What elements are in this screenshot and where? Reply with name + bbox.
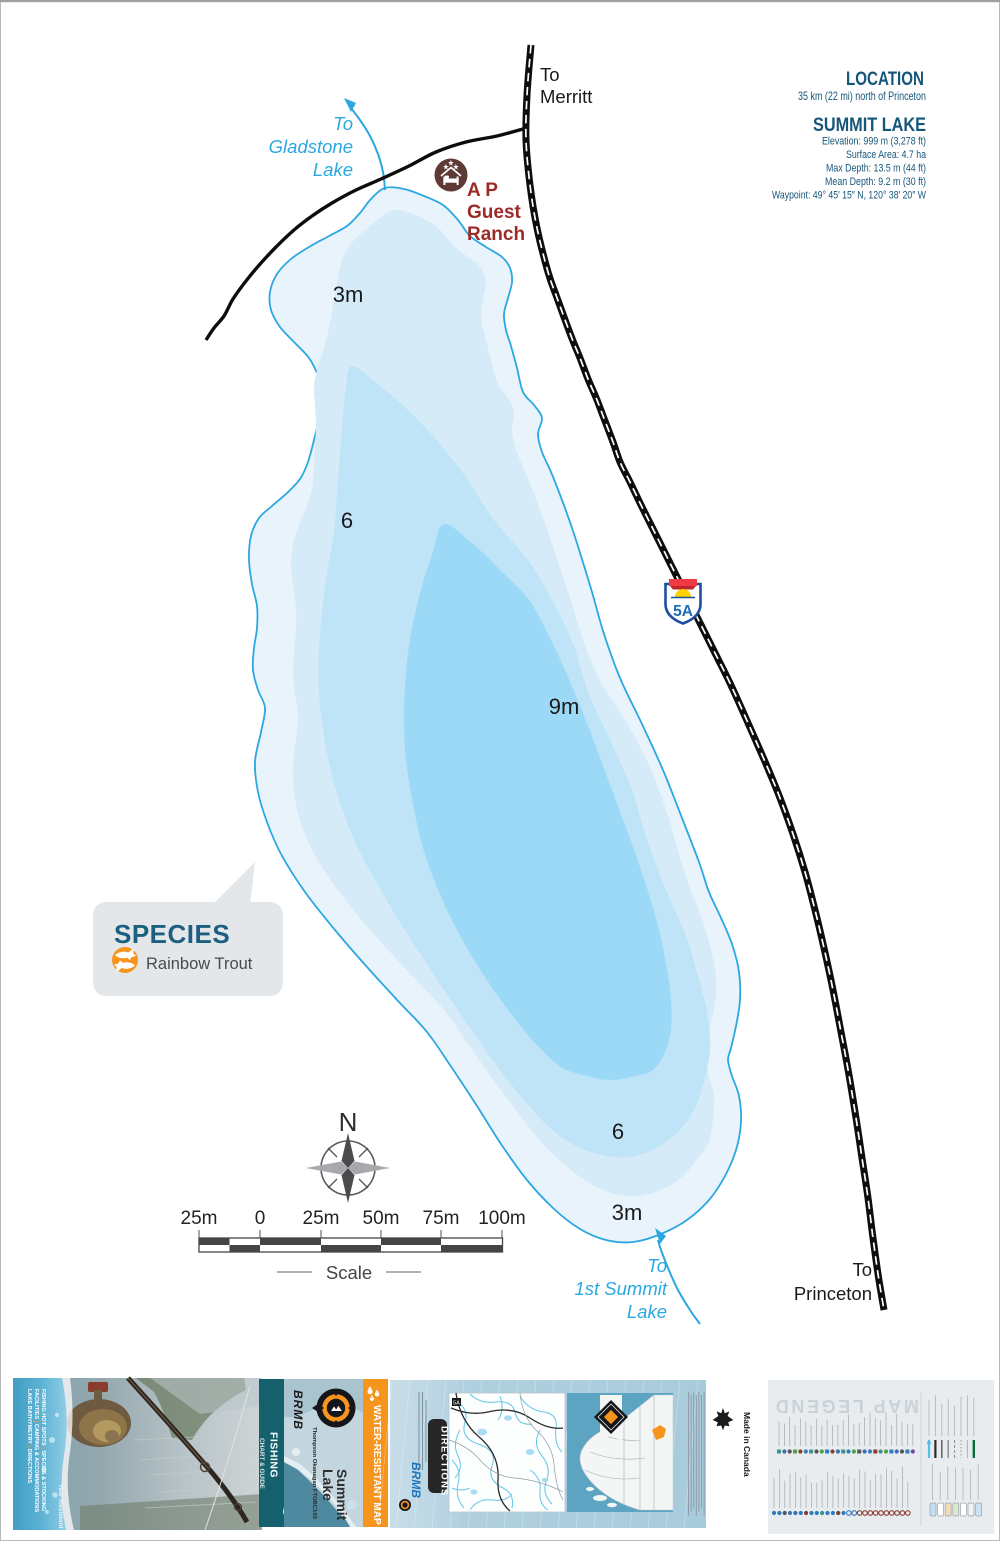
svg-text:50m: 50m bbox=[363, 1208, 400, 1229]
svg-text:Scale: Scale bbox=[326, 1262, 372, 1283]
svg-text:FISHING: FISHING bbox=[268, 1432, 280, 1478]
svg-text:SUMMIT LAKE: SUMMIT LAKE bbox=[813, 115, 926, 136]
svg-text:Lake: Lake bbox=[313, 159, 353, 180]
svg-text:Tear-Resistant: Tear-Resistant bbox=[57, 1484, 64, 1530]
svg-text:3m: 3m bbox=[612, 1200, 643, 1225]
svg-text:5A: 5A bbox=[453, 1401, 460, 1407]
svg-text:MAP LEGEND: MAP LEGEND bbox=[773, 1396, 919, 1416]
svg-text:FACILITIES | CAMPING & ACCOMMO: FACILITIES | CAMPING & ACCOMMODATIONS bbox=[33, 1389, 39, 1512]
svg-text:Surface Area: 4.7 ha: Surface Area: 4.7 ha bbox=[846, 149, 927, 161]
svg-text:6: 6 bbox=[341, 508, 353, 533]
svg-text:3m: 3m bbox=[333, 282, 364, 307]
svg-text:Princeton: Princeton bbox=[794, 1283, 872, 1304]
svg-text:25m: 25m bbox=[303, 1208, 340, 1229]
svg-text:25m: 25m bbox=[181, 1208, 218, 1229]
svg-text:To: To bbox=[852, 1259, 872, 1280]
svg-text:To: To bbox=[647, 1255, 667, 1276]
svg-text:To: To bbox=[540, 64, 560, 85]
svg-text:Guest: Guest bbox=[467, 202, 522, 223]
svg-text:BRMB: BRMB bbox=[291, 1390, 305, 1430]
svg-text:Waypoint: 49° 45′ 15″ N, 120°: Waypoint: 49° 45′ 15″ N, 120° 38′ 20″ W bbox=[772, 190, 926, 202]
svg-text:Mean Depth: 9.2 m (30 ft): Mean Depth: 9.2 m (30 ft) bbox=[825, 176, 926, 188]
svg-text:Made in Canada: Made in Canada bbox=[742, 1412, 752, 1477]
svg-text:0: 0 bbox=[255, 1208, 266, 1229]
svg-text:5A: 5A bbox=[673, 603, 693, 620]
svg-text:35 km (22 mi) north of Princet: 35 km (22 mi) north of Princeton bbox=[798, 89, 926, 103]
svg-text:LAKE BATHYMETRY | DIRECTIONS: LAKE BATHYMETRY | DIRECTIONS bbox=[26, 1389, 32, 1483]
svg-text:Thompson Okanagan FTOBC193: Thompson Okanagan FTOBC193 bbox=[311, 1427, 317, 1520]
svg-text:FISHING HOT SPOTS | SPECIES &: FISHING HOT SPOTS | SPECIES & STOCKING bbox=[40, 1389, 46, 1511]
svg-text:1st Summit: 1st Summit bbox=[574, 1278, 667, 1299]
svg-text:Gladstone: Gladstone bbox=[269, 136, 353, 157]
svg-text:100m: 100m bbox=[478, 1208, 526, 1229]
svg-text:Lake: Lake bbox=[627, 1301, 667, 1322]
svg-text:LOCATION: LOCATION bbox=[846, 68, 924, 90]
svg-text:Merritt: Merritt bbox=[540, 86, 592, 107]
svg-text:Lake: Lake bbox=[320, 1469, 336, 1501]
svg-text:CHART & GUIDE: CHART & GUIDE bbox=[258, 1438, 265, 1490]
svg-text:DIRECTIONS: DIRECTIONS bbox=[439, 1426, 450, 1497]
svg-text:9m: 9m bbox=[549, 694, 580, 719]
svg-text:Ranch: Ranch bbox=[467, 224, 525, 245]
svg-text:WATER-RESISTANT MAP: WATER-RESISTANT MAP bbox=[371, 1405, 382, 1525]
svg-text:SPECIES: SPECIES bbox=[114, 919, 230, 949]
svg-text:Elevation: 999 m (3,278 ft): Elevation: 999 m (3,278 ft) bbox=[822, 136, 926, 148]
svg-text:Rainbow Trout: Rainbow Trout bbox=[146, 955, 253, 973]
svg-text:BRMB: BRMB bbox=[409, 1462, 423, 1498]
svg-text:N: N bbox=[339, 1107, 358, 1137]
svg-text:To: To bbox=[333, 113, 353, 134]
svg-text:6: 6 bbox=[612, 1119, 624, 1144]
svg-text:Max Depth: 13.5 m (44 ft): Max Depth: 13.5 m (44 ft) bbox=[826, 163, 926, 175]
svg-text:A P: A P bbox=[467, 180, 498, 201]
svg-text:75m: 75m bbox=[423, 1208, 460, 1229]
